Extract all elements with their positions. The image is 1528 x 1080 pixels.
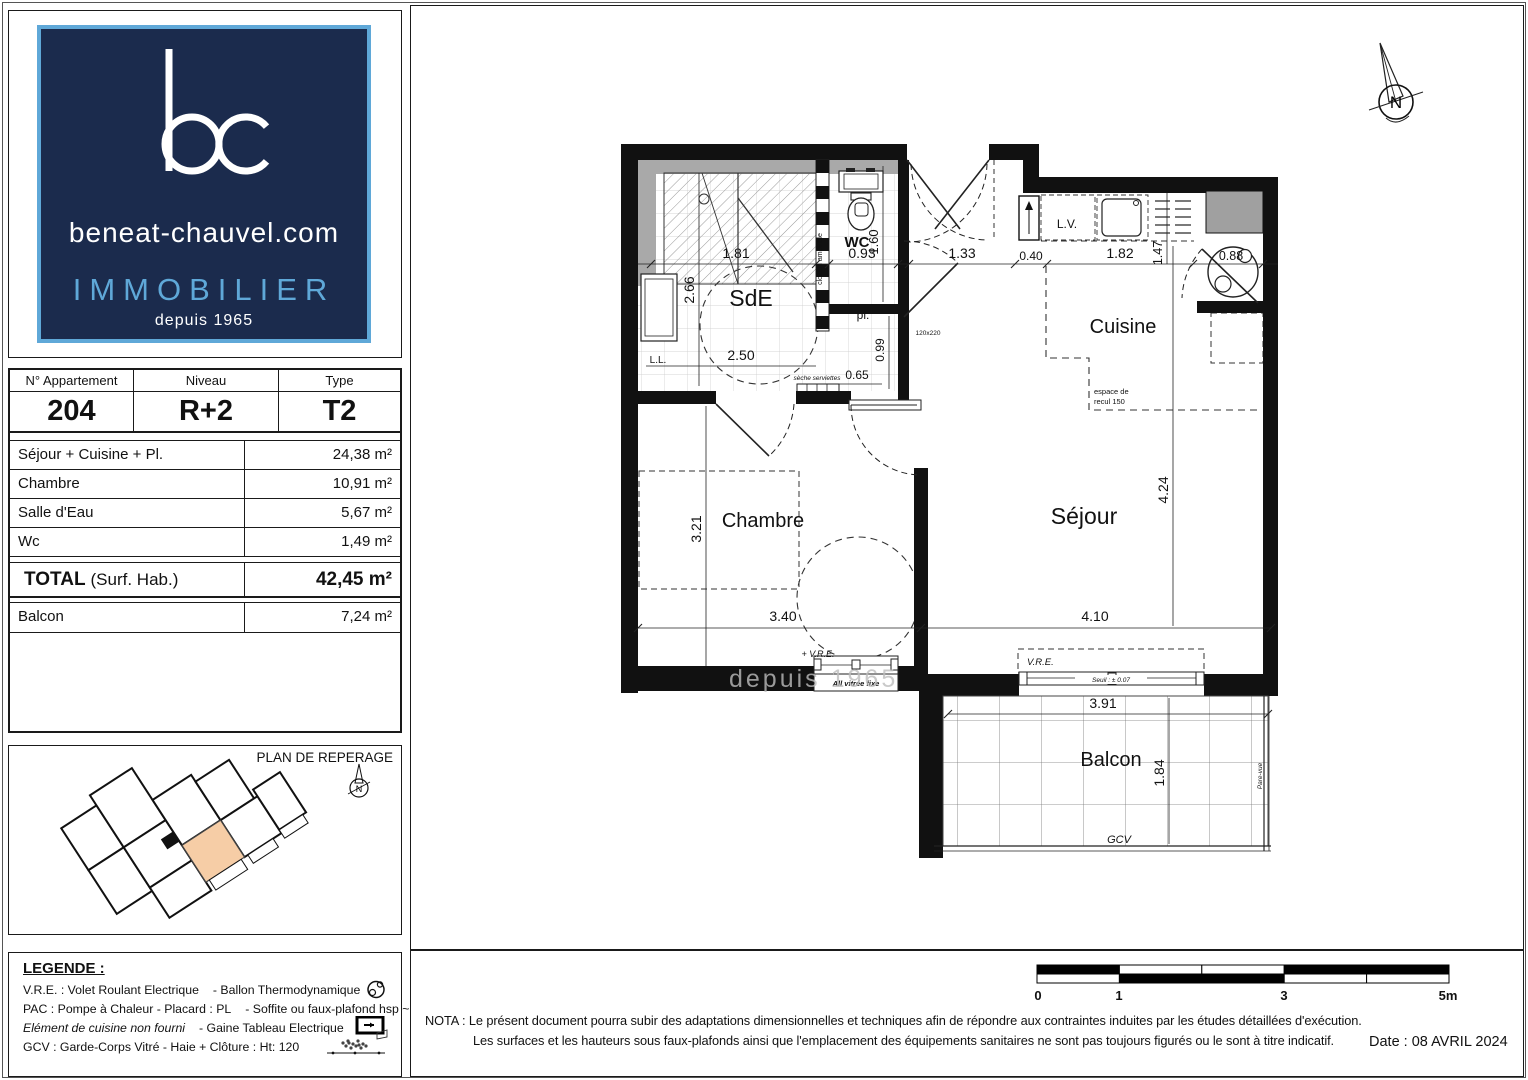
area-value: 1,49 m² bbox=[245, 528, 400, 556]
svg-text:1.33: 1.33 bbox=[948, 245, 975, 261]
header-level: Niveau bbox=[134, 370, 279, 391]
svg-text:4.24: 4.24 bbox=[1155, 476, 1171, 503]
svg-text:0.88: 0.88 bbox=[1219, 249, 1243, 263]
svg-text:V.R.E.: V.R.E. bbox=[1027, 657, 1054, 668]
room-label-sejour: Séjour bbox=[1051, 503, 1118, 529]
table-row: Salle d'Eau 5,67 m² bbox=[10, 499, 400, 528]
total-label: TOTAL (Surf. Hab.) bbox=[10, 563, 245, 596]
notes-panel: 0 1 3 5m NOTA : Le présent document pour… bbox=[410, 950, 1524, 1077]
svg-text:2.50: 2.50 bbox=[727, 347, 754, 363]
floorplan-document: beneat-chauvel.com IMMOBILIER depuis 196… bbox=[0, 0, 1528, 1080]
duct-shaft bbox=[1206, 191, 1263, 233]
area-label: Séjour + Cuisine + Pl. bbox=[10, 441, 245, 469]
svg-text:1.82: 1.82 bbox=[1106, 245, 1133, 261]
agency-logo-box: beneat-chauvel.com IMMOBILIER depuis 196… bbox=[8, 10, 402, 358]
nota-line2: Les surfaces et les hauteurs sous faux-p… bbox=[473, 1031, 1485, 1051]
svg-text:Pare-vue: Pare-vue bbox=[1257, 762, 1264, 789]
svg-text:3.40: 3.40 bbox=[769, 608, 796, 624]
watermark: depuis 1965 bbox=[729, 665, 898, 693]
area-value: 24,38 m² bbox=[245, 441, 400, 469]
apartment-info-table: N° Appartement Niveau Type 204 R+2 T2 Sé… bbox=[8, 368, 402, 733]
svg-text:0.65: 0.65 bbox=[845, 368, 869, 382]
hob-icon bbox=[1155, 201, 1191, 233]
svg-text:3.21: 3.21 bbox=[688, 515, 704, 542]
svg-text:cloison amovible: cloison amovible bbox=[817, 233, 824, 285]
svg-text:0.99: 0.99 bbox=[873, 338, 887, 362]
svg-text:N: N bbox=[1390, 93, 1402, 112]
svg-text:120x220: 120x220 bbox=[916, 330, 941, 337]
balcony-row: Balcon 7,24 m² bbox=[10, 603, 400, 633]
type-value: T2 bbox=[279, 392, 400, 431]
water-heater-icon bbox=[363, 980, 389, 999]
room-label-pl: pl. bbox=[857, 308, 870, 322]
legend-box: LEGENDE : V.R.E. : Volet Roulant Electri… bbox=[8, 952, 402, 1077]
towel-radiator-icon bbox=[797, 384, 839, 392]
washing-machine-icon bbox=[641, 274, 677, 341]
svg-text:0: 0 bbox=[1034, 988, 1041, 1003]
svg-text:1.81: 1.81 bbox=[722, 245, 749, 261]
svg-text:Seuil : ± 0.07: Seuil : ± 0.07 bbox=[1092, 677, 1130, 684]
electrical-panel-icon bbox=[1019, 196, 1039, 240]
svg-text:sèche serviettes: sèche serviettes bbox=[794, 375, 842, 382]
table-row: Séjour + Cuisine + Pl. 24,38 m² bbox=[10, 441, 400, 470]
legend-line: PAC : Pompe à Chaleur - Placard : PL- So… bbox=[23, 999, 389, 1018]
mini-north-icon: N bbox=[348, 764, 370, 797]
agency-since: depuis 1965 bbox=[41, 312, 367, 330]
room-label-balcon: Balcon bbox=[1080, 749, 1141, 771]
legend-line: V.R.E. : Volet Roulant Electrique- Ballo… bbox=[23, 980, 389, 999]
area-value: 5,67 m² bbox=[245, 499, 400, 527]
location-plan-title: PLAN DE REPERAGE bbox=[256, 750, 393, 765]
svg-text:GCV: GCV bbox=[1107, 834, 1133, 846]
divider bbox=[10, 433, 400, 441]
header-apartment: N° Appartement bbox=[10, 370, 134, 391]
level-value: R+2 bbox=[134, 392, 279, 431]
shower-icon bbox=[664, 173, 824, 284]
floor-plan-drawing: 1.81 0.93 1.33 0.40 1.82 0.88 1.47 2.66 … bbox=[411, 6, 1522, 948]
svg-text:L.L.: L.L. bbox=[650, 355, 667, 366]
svg-text:3: 3 bbox=[1280, 988, 1287, 1003]
legend-line: GCV : Garde-Corps Vitré - Haie + Clôture… bbox=[23, 1037, 389, 1056]
legend-line: Elément de cuisine non fourni- Gaine Tab… bbox=[23, 1018, 389, 1037]
table-row: Wc 1,49 m² bbox=[10, 528, 400, 557]
counter-return-outline bbox=[1211, 313, 1263, 363]
document-date: Date : 08 AVRIL 2024 bbox=[1369, 1034, 1508, 1050]
svg-text:4.10: 4.10 bbox=[1081, 608, 1108, 624]
svg-text:recul 150: recul 150 bbox=[1094, 397, 1125, 406]
svg-text:1.47: 1.47 bbox=[1151, 241, 1165, 265]
hedge-fence-icon bbox=[325, 1037, 389, 1057]
total-row: TOTAL (Surf. Hab.) 42,45 m² bbox=[10, 563, 400, 598]
bc-monogram bbox=[101, 41, 311, 211]
agency-domain: beneat-chauvel.com bbox=[41, 217, 367, 249]
agency-logo: beneat-chauvel.com IMMOBILIER depuis 196… bbox=[37, 25, 371, 343]
location-plan-box: PLAN DE REPERAGE bbox=[8, 745, 402, 935]
area-label: Salle d'Eau bbox=[10, 499, 245, 527]
balcony bbox=[934, 696, 1271, 851]
washbasin-icon bbox=[839, 168, 883, 192]
room-label-cuisine: Cuisine bbox=[1090, 316, 1157, 338]
balcony-label: Balcon bbox=[10, 603, 245, 632]
toilet-icon bbox=[848, 193, 874, 230]
svg-text:N: N bbox=[356, 784, 363, 794]
svg-text:3.91: 3.91 bbox=[1089, 695, 1116, 711]
svg-text:espace de: espace de bbox=[1094, 387, 1129, 396]
nota-line1: Le présent document pourra subir des ada… bbox=[469, 1013, 1362, 1028]
svg-text:5m: 5m bbox=[1439, 988, 1458, 1003]
room-label-sde: SdE bbox=[729, 285, 772, 311]
header-type: Type bbox=[279, 370, 400, 391]
sink-icon bbox=[1102, 199, 1141, 236]
balcony-value: 7,24 m² bbox=[245, 603, 400, 632]
nota-label: NOTA : bbox=[425, 1013, 465, 1028]
area-label: Chambre bbox=[10, 470, 245, 498]
svg-text:+ V.R.E.: + V.R.E. bbox=[801, 649, 834, 659]
svg-text:1: 1 bbox=[1115, 988, 1122, 1003]
turning-circle bbox=[797, 537, 919, 659]
table-row: Chambre 10,91 m² bbox=[10, 470, 400, 499]
nota-text: NOTA : Le présent document pourra subir … bbox=[425, 1011, 1485, 1052]
area-value: 10,91 m² bbox=[245, 470, 400, 498]
building-key-plan: N bbox=[9, 746, 400, 933]
svg-text:0.40: 0.40 bbox=[1019, 249, 1043, 263]
total-value: 42,45 m² bbox=[245, 563, 400, 596]
apartment-number: 204 bbox=[10, 392, 134, 431]
agency-brand: IMMOBILIER bbox=[41, 272, 367, 308]
svg-text:L.V.: L.V. bbox=[1057, 217, 1077, 231]
scale-bar: 0 1 3 5m bbox=[1029, 959, 1469, 1007]
north-compass-icon: N bbox=[1369, 43, 1423, 122]
room-label-chambre: Chambre bbox=[722, 510, 804, 532]
area-label: Wc bbox=[10, 528, 245, 556]
info-header-row: N° Appartement Niveau Type bbox=[10, 370, 400, 392]
svg-text:1.84: 1.84 bbox=[1151, 759, 1167, 786]
info-value-row: 204 R+2 T2 bbox=[10, 392, 400, 433]
svg-text:2.66: 2.66 bbox=[681, 276, 697, 303]
legend-title: LEGENDE : bbox=[23, 960, 389, 977]
floor-plan-panel: 1.81 0.93 1.33 0.40 1.82 0.88 1.47 2.66 … bbox=[410, 5, 1524, 950]
room-label-wc: WC bbox=[845, 234, 870, 251]
